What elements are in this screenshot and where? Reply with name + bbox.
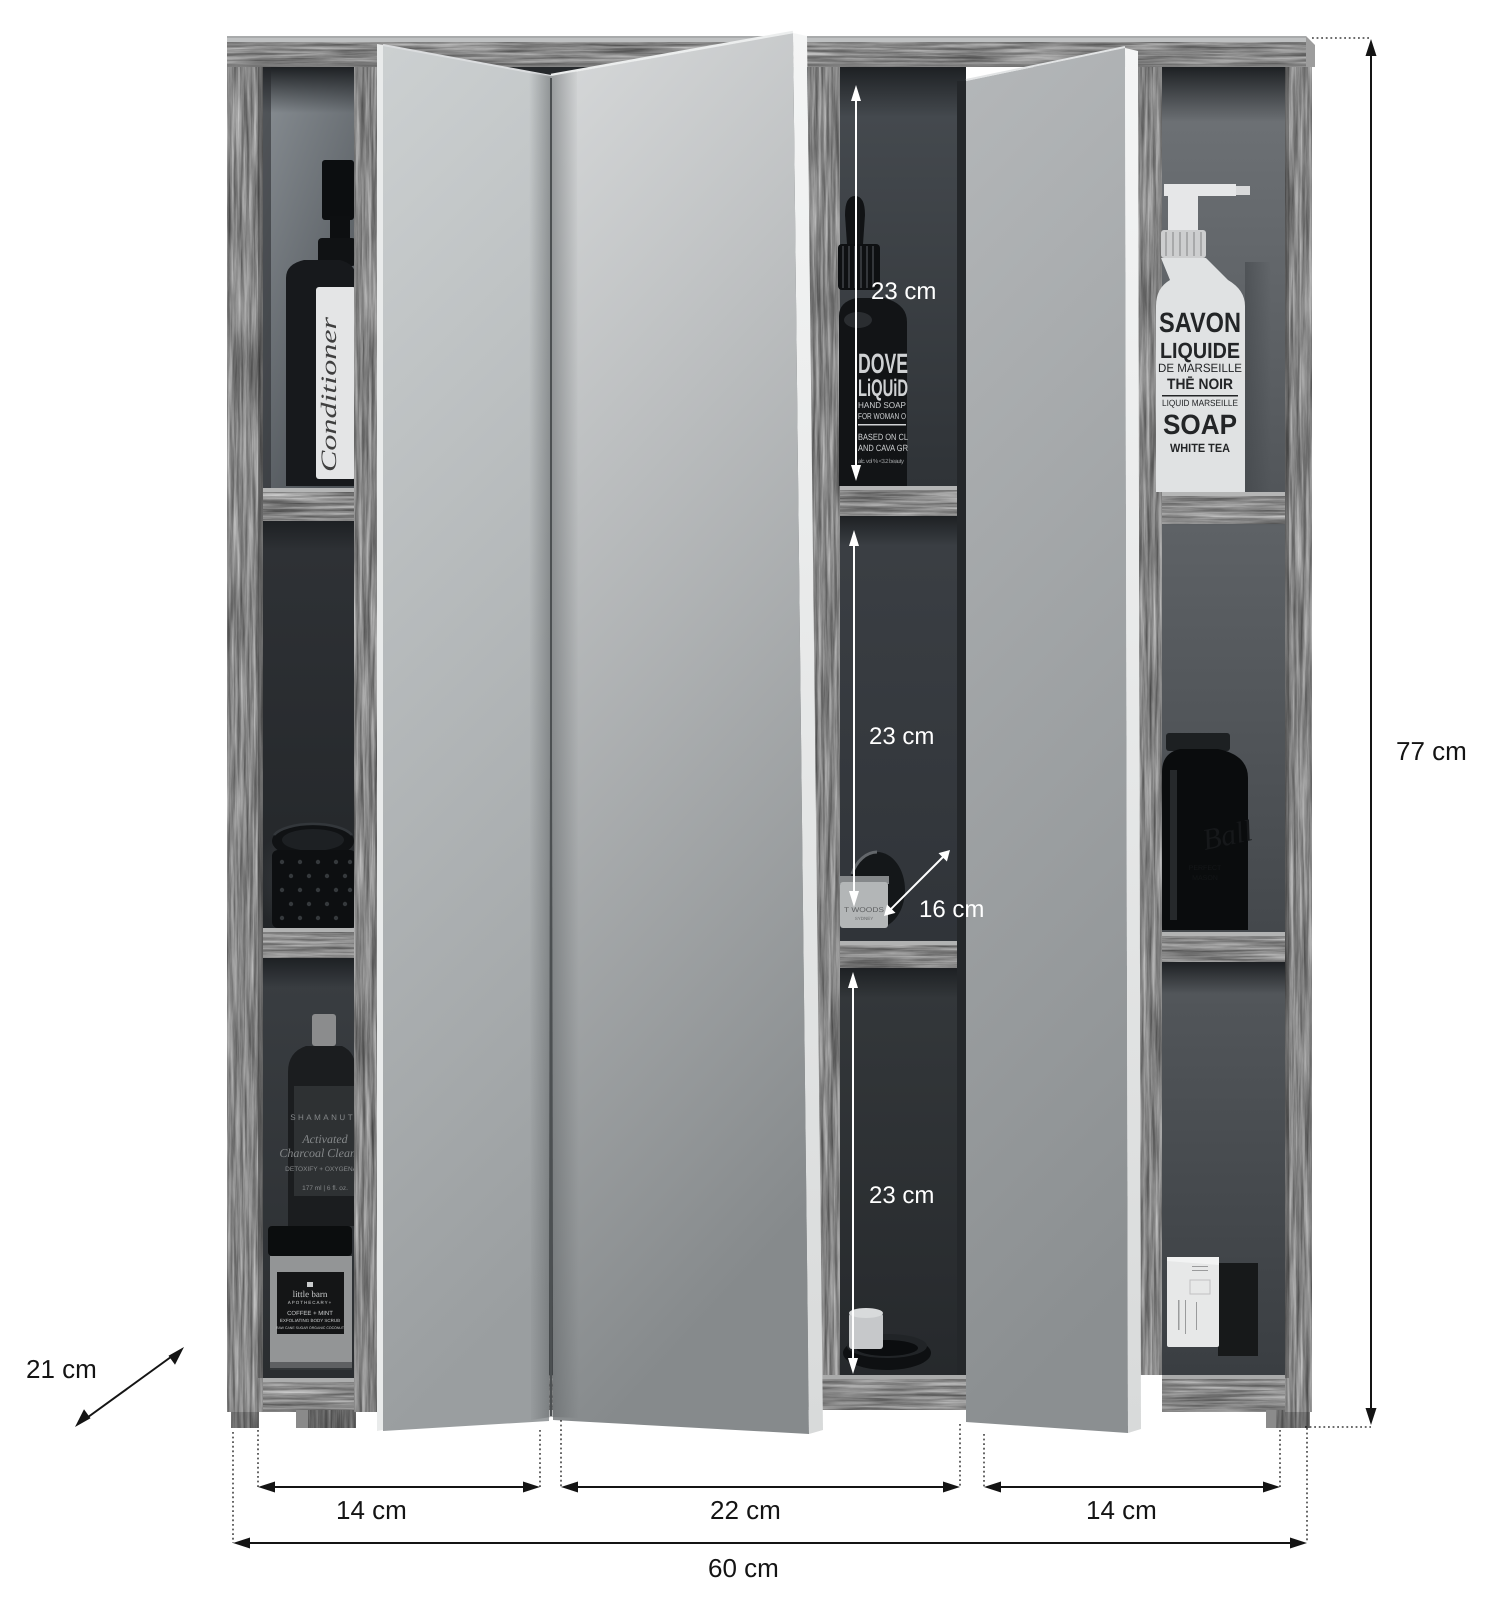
svg-text:COFFEE + MINT: COFFEE + MINT — [287, 1310, 333, 1317]
svg-text:Activated: Activated — [301, 1132, 348, 1146]
svg-text:PERFECT: PERFECT — [1189, 865, 1222, 872]
svg-text:16 cm: 16 cm — [919, 896, 984, 923]
svg-text:T WOODS: T WOODS — [844, 907, 884, 914]
svg-text:SAVON: SAVON — [1159, 307, 1241, 338]
svg-text:21 cm: 21 cm — [26, 1354, 97, 1384]
svg-text:THĒ NOIR: THĒ NOIR — [1167, 376, 1233, 393]
svg-text:LIQUID MARSEILLE: LIQUID MARSEILLE — [1162, 398, 1238, 408]
svg-text:AND CAVA GR: AND CAVA GR — [858, 443, 908, 453]
svg-text:Conditioner: Conditioner — [316, 316, 341, 472]
svg-text:FOR WOMAN O: FOR WOMAN O — [858, 411, 906, 421]
svg-text:little barn: little barn — [293, 1289, 328, 1299]
svg-text:SHAMANUTI: SHAMANUTI — [290, 1113, 360, 1122]
svg-text:HAND SOAP: HAND SOAP — [858, 400, 906, 410]
svg-text:SYDNEY: SYDNEY — [855, 916, 874, 921]
svg-text:77 cm: 77 cm — [1396, 736, 1467, 766]
svg-text:alc. vol % <3.2 beauty: alc. vol % <3.2 beauty — [858, 458, 904, 465]
svg-text:14 cm: 14 cm — [1086, 1495, 1157, 1525]
svg-text:23 cm: 23 cm — [869, 723, 934, 750]
svg-text:23 cm: 23 cm — [869, 1182, 934, 1209]
svg-text:APOTHECARY+: APOTHECARY+ — [288, 1300, 333, 1305]
svg-text:22 cm: 22 cm — [710, 1495, 781, 1525]
svg-text:EXFOLIATING BODY SCRUB: EXFOLIATING BODY SCRUB — [280, 1318, 340, 1323]
svg-text:WHITE TEA: WHITE TEA — [1170, 441, 1230, 455]
svg-text:SOAP: SOAP — [1163, 409, 1237, 440]
svg-text:177 ml | 6 fl. oz.: 177 ml | 6 fl. oz. — [302, 1185, 348, 1192]
svg-text:MASON: MASON — [1192, 875, 1218, 882]
svg-text:DE MARSEILLE: DE MARSEILLE — [1158, 361, 1242, 375]
svg-text:LIQUIDE: LIQUIDE — [1160, 338, 1240, 363]
svg-text:BASED ON CL: BASED ON CL — [858, 432, 908, 442]
svg-text:60 cm: 60 cm — [708, 1553, 779, 1583]
svg-text:DETOXIFY + OXYGENATE: DETOXIFY + OXYGENATE — [285, 1166, 365, 1173]
svg-text:14 cm: 14 cm — [336, 1495, 407, 1525]
svg-text:LiQUiD: LiQUiD — [858, 375, 908, 402]
svg-text:23 cm: 23 cm — [871, 278, 936, 305]
svg-text:RAW CANE SUGAR ORGANIC COCONUT: RAW CANE SUGAR ORGANIC COCONUT — [276, 1326, 345, 1330]
